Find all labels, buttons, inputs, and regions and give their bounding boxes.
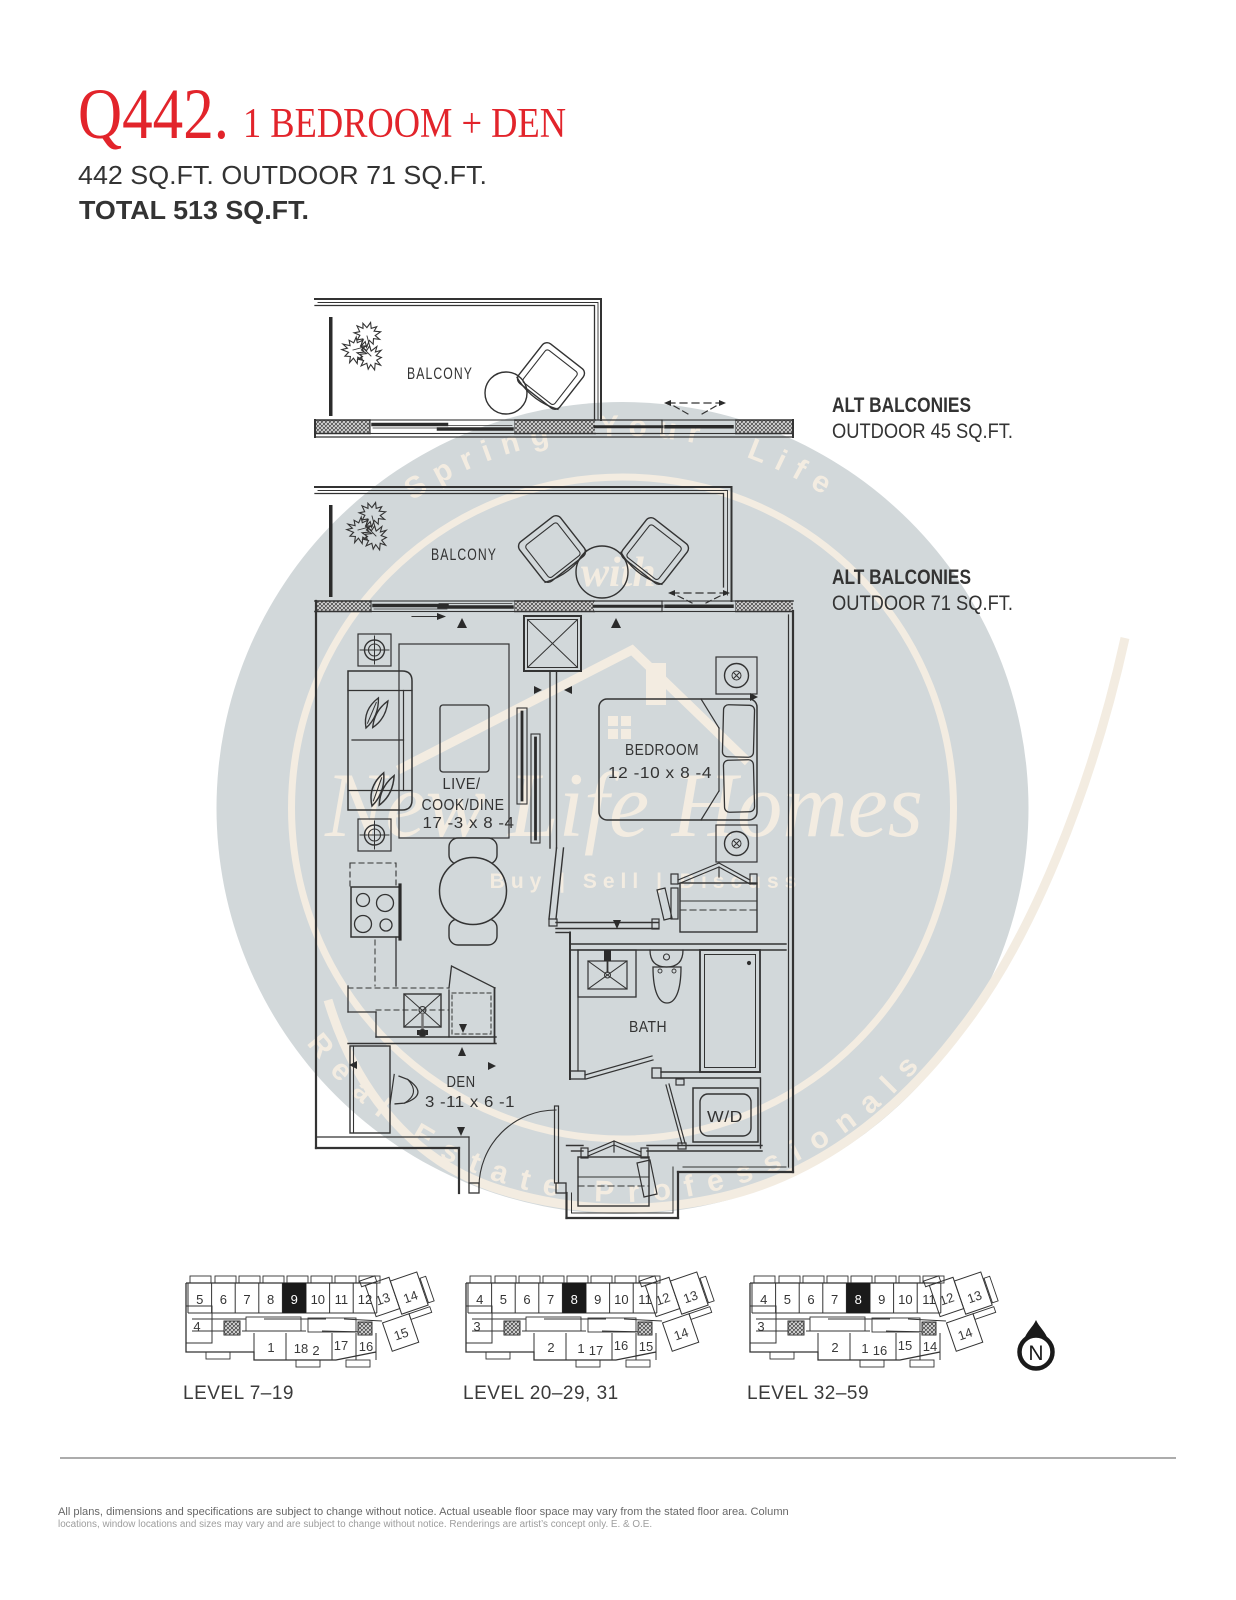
svg-text:OUTDOOR 71 SQ.FT.: OUTDOOR 71 SQ.FT. bbox=[832, 592, 1013, 615]
svg-text:9: 9 bbox=[594, 1292, 601, 1307]
svg-text:BEDROOM: BEDROOM bbox=[625, 742, 699, 759]
svg-text:3: 3 bbox=[757, 1319, 764, 1334]
svg-text:3 -11 x 6 -1: 3 -11 x 6 -1 bbox=[425, 1094, 515, 1111]
svg-text:LEVEL 20–29, 31: LEVEL 20–29, 31 bbox=[463, 1383, 619, 1404]
svg-text:LEVEL 32–59: LEVEL 32–59 bbox=[747, 1383, 869, 1404]
svg-text:7: 7 bbox=[831, 1292, 838, 1307]
svg-text:6: 6 bbox=[523, 1292, 530, 1307]
svg-text:16: 16 bbox=[359, 1339, 373, 1354]
svg-text:3: 3 bbox=[473, 1319, 480, 1334]
svg-text:17: 17 bbox=[589, 1343, 603, 1358]
svg-text:1: 1 bbox=[267, 1340, 274, 1355]
svg-text:TOTAL 513 SQ.FT.: TOTAL 513 SQ.FT. bbox=[79, 195, 309, 225]
svg-text:8: 8 bbox=[571, 1292, 578, 1307]
svg-text:ALT BALCONIES: ALT BALCONIES bbox=[832, 394, 971, 417]
svg-text:BALCONY: BALCONY bbox=[431, 545, 497, 564]
svg-text:5: 5 bbox=[196, 1292, 203, 1307]
svg-text:6: 6 bbox=[220, 1292, 227, 1307]
svg-text:4: 4 bbox=[760, 1292, 767, 1307]
svg-text:8: 8 bbox=[267, 1292, 274, 1307]
svg-text:Q442.: Q442. bbox=[78, 74, 229, 154]
svg-text:N: N bbox=[1028, 1342, 1043, 1365]
svg-text:15: 15 bbox=[898, 1338, 912, 1353]
svg-text:All plans, dimensions and spec: All plans, dimensions and specifications… bbox=[58, 1506, 789, 1518]
svg-text:9: 9 bbox=[878, 1292, 885, 1307]
svg-text:COOK/DINE: COOK/DINE bbox=[422, 797, 505, 814]
svg-text:17: 17 bbox=[334, 1338, 348, 1353]
svg-text:2: 2 bbox=[312, 1343, 319, 1358]
svg-text:LIVE/: LIVE/ bbox=[443, 776, 481, 793]
svg-text:16: 16 bbox=[873, 1343, 887, 1358]
svg-text:2: 2 bbox=[547, 1340, 554, 1355]
svg-text:4: 4 bbox=[193, 1319, 200, 1334]
svg-text:17 -3 x 8 -4: 17 -3 x 8 -4 bbox=[423, 815, 515, 832]
svg-text:W/D: W/D bbox=[707, 1109, 743, 1126]
svg-text:2: 2 bbox=[831, 1340, 838, 1355]
svg-text:4: 4 bbox=[476, 1292, 483, 1307]
svg-text:with: with bbox=[581, 550, 656, 596]
svg-text:11: 11 bbox=[335, 1292, 349, 1307]
svg-text:10: 10 bbox=[898, 1292, 912, 1307]
svg-text:14: 14 bbox=[923, 1339, 937, 1354]
svg-text:10: 10 bbox=[311, 1292, 325, 1307]
svg-text:BALCONY: BALCONY bbox=[407, 364, 473, 383]
svg-text:1 BEDROOM + DEN: 1 BEDROOM + DEN bbox=[243, 101, 566, 147]
svg-text:6: 6 bbox=[807, 1292, 814, 1307]
svg-text:1: 1 bbox=[577, 1341, 584, 1356]
svg-text:8: 8 bbox=[855, 1292, 862, 1307]
svg-text:15: 15 bbox=[639, 1339, 653, 1354]
svg-text:ALT BALCONIES: ALT BALCONIES bbox=[832, 566, 971, 589]
svg-text:9: 9 bbox=[291, 1292, 298, 1307]
svg-text:442 SQ.FT. OUTDOOR 71 SQ.FT.: 442 SQ.FT. OUTDOOR 71 SQ.FT. bbox=[78, 160, 487, 190]
svg-text:OUTDOOR 45 SQ.FT.: OUTDOOR 45 SQ.FT. bbox=[832, 420, 1013, 443]
svg-text:1: 1 bbox=[861, 1341, 868, 1356]
svg-text:18: 18 bbox=[294, 1341, 308, 1356]
svg-text:12 -10 x 8 -4: 12 -10 x 8 -4 bbox=[608, 765, 712, 782]
svg-text:LEVEL 7–19: LEVEL 7–19 bbox=[183, 1383, 294, 1404]
svg-text:5: 5 bbox=[500, 1292, 507, 1307]
svg-text:locations, window locations an: locations, window locations and sizes ma… bbox=[58, 1519, 652, 1530]
svg-text:16: 16 bbox=[614, 1338, 628, 1353]
svg-text:BATH: BATH bbox=[629, 1019, 667, 1036]
svg-text:7: 7 bbox=[243, 1292, 250, 1307]
svg-text:10: 10 bbox=[614, 1292, 628, 1307]
svg-text:DEN: DEN bbox=[447, 1074, 476, 1091]
svg-text:5: 5 bbox=[784, 1292, 791, 1307]
svg-text:7: 7 bbox=[547, 1292, 554, 1307]
